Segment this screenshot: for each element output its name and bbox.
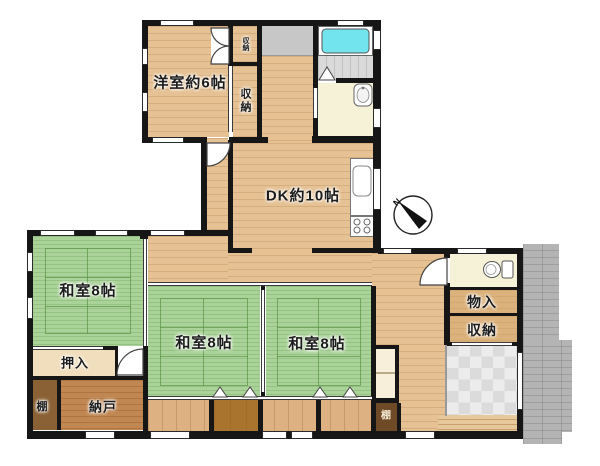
window (27, 297, 33, 319)
sliding-door-track (148, 396, 372, 400)
window (291, 431, 313, 439)
wall (312, 136, 381, 143)
room-label-shuno-big: 収納 (237, 88, 253, 114)
wall (143, 346, 148, 439)
terrace-upper (523, 244, 559, 340)
closet-middle-line (375, 372, 395, 374)
wall (115, 346, 118, 376)
room-label-shuno-small: 収納 (240, 37, 250, 51)
room-label-dk: DK約10帖 (266, 185, 340, 206)
corridor-vertical-floor (207, 138, 228, 236)
wall (140, 230, 148, 239)
oshiire-fusuma (33, 346, 103, 350)
wall (447, 313, 523, 316)
wall (229, 137, 268, 143)
sliding-door (313, 88, 318, 118)
wall (27, 376, 148, 380)
window (150, 230, 185, 236)
wall (312, 248, 378, 253)
window (383, 248, 412, 254)
wall (57, 380, 61, 430)
room-label-yoshitsu: 洋室約6帖 (153, 72, 226, 93)
wall (371, 286, 376, 432)
kitchen-stove (350, 216, 374, 237)
genkan-step (438, 415, 520, 431)
kitchen-counter (350, 158, 374, 216)
room-label-monoire: 物入 (467, 292, 497, 312)
compass-circle (394, 196, 432, 234)
window (160, 20, 194, 26)
wall (444, 248, 450, 258)
window (373, 108, 381, 128)
room-label-washitsu3: 和室8帖 (288, 333, 345, 354)
wall (209, 398, 214, 432)
toilet-room-floor (450, 254, 517, 287)
tatami-line (160, 356, 248, 357)
wall (229, 62, 257, 66)
laundry-edge-line (262, 55, 313, 56)
window (150, 431, 190, 439)
wall (336, 78, 373, 83)
wall (228, 26, 233, 66)
bathtub-surround (318, 26, 373, 56)
wall (201, 140, 207, 236)
window (337, 20, 364, 26)
window (95, 230, 128, 236)
window (85, 431, 115, 439)
window (373, 168, 381, 210)
floor-plan: N 洋室約6帖 収納 収納 DK約10帖 和室8帖 和室8帖 和室8帖 押入 棚… (0, 0, 600, 466)
tatami-line (160, 327, 248, 328)
room-label-washitsu1: 和室8帖 (59, 280, 116, 301)
sliding-door (228, 66, 233, 132)
tatami-line (45, 306, 131, 307)
room-label-shuno-right: 収納 (467, 320, 497, 340)
wall (395, 349, 399, 398)
room-label-tana-right: 棚 (381, 407, 391, 422)
wall (228, 248, 252, 253)
wall (257, 20, 262, 143)
room-label-oshiire: 押入 (61, 353, 89, 372)
wall (397, 403, 401, 431)
tatami-line (45, 277, 131, 278)
terrace-lower (523, 340, 572, 432)
hall-top-floor (262, 56, 313, 143)
room-label-washitsu2: 和室8帖 (175, 332, 232, 353)
window (40, 230, 75, 236)
compass-north-label: N (391, 196, 403, 208)
genkan-edge-line (445, 345, 447, 416)
wall (228, 140, 233, 253)
window (262, 431, 287, 439)
washroom-floor (318, 83, 373, 136)
veranda-dark-section (214, 400, 258, 431)
window (152, 137, 184, 143)
room-label-tana-left: 棚 (37, 398, 48, 414)
wall (447, 287, 523, 290)
tatami-line (277, 356, 361, 357)
fusuma-washitsu2-3 (261, 290, 265, 392)
entrance-door (517, 352, 523, 410)
fusuma-washitsu1-2 (143, 239, 147, 346)
wall (313, 78, 318, 83)
sliding-door-track (148, 282, 372, 286)
tatami-line (277, 327, 361, 328)
genkan-tile-floor (447, 345, 517, 416)
wall (372, 398, 399, 403)
shuno-sliding-door (452, 342, 512, 346)
corridor-arm-floor (148, 236, 233, 283)
window (142, 48, 148, 65)
window (142, 92, 148, 112)
window (27, 252, 33, 272)
laundry-area (262, 26, 313, 56)
compass-needle-icon (398, 201, 427, 229)
window (457, 248, 487, 254)
room-label-nando: 納戸 (89, 397, 117, 416)
window (405, 431, 435, 439)
wall (258, 398, 263, 432)
wall (142, 20, 148, 143)
terrace-tab (523, 432, 562, 444)
nando-door-cell (117, 350, 143, 376)
window (373, 30, 381, 50)
bath-washing-area (318, 56, 373, 80)
wall (316, 398, 321, 432)
